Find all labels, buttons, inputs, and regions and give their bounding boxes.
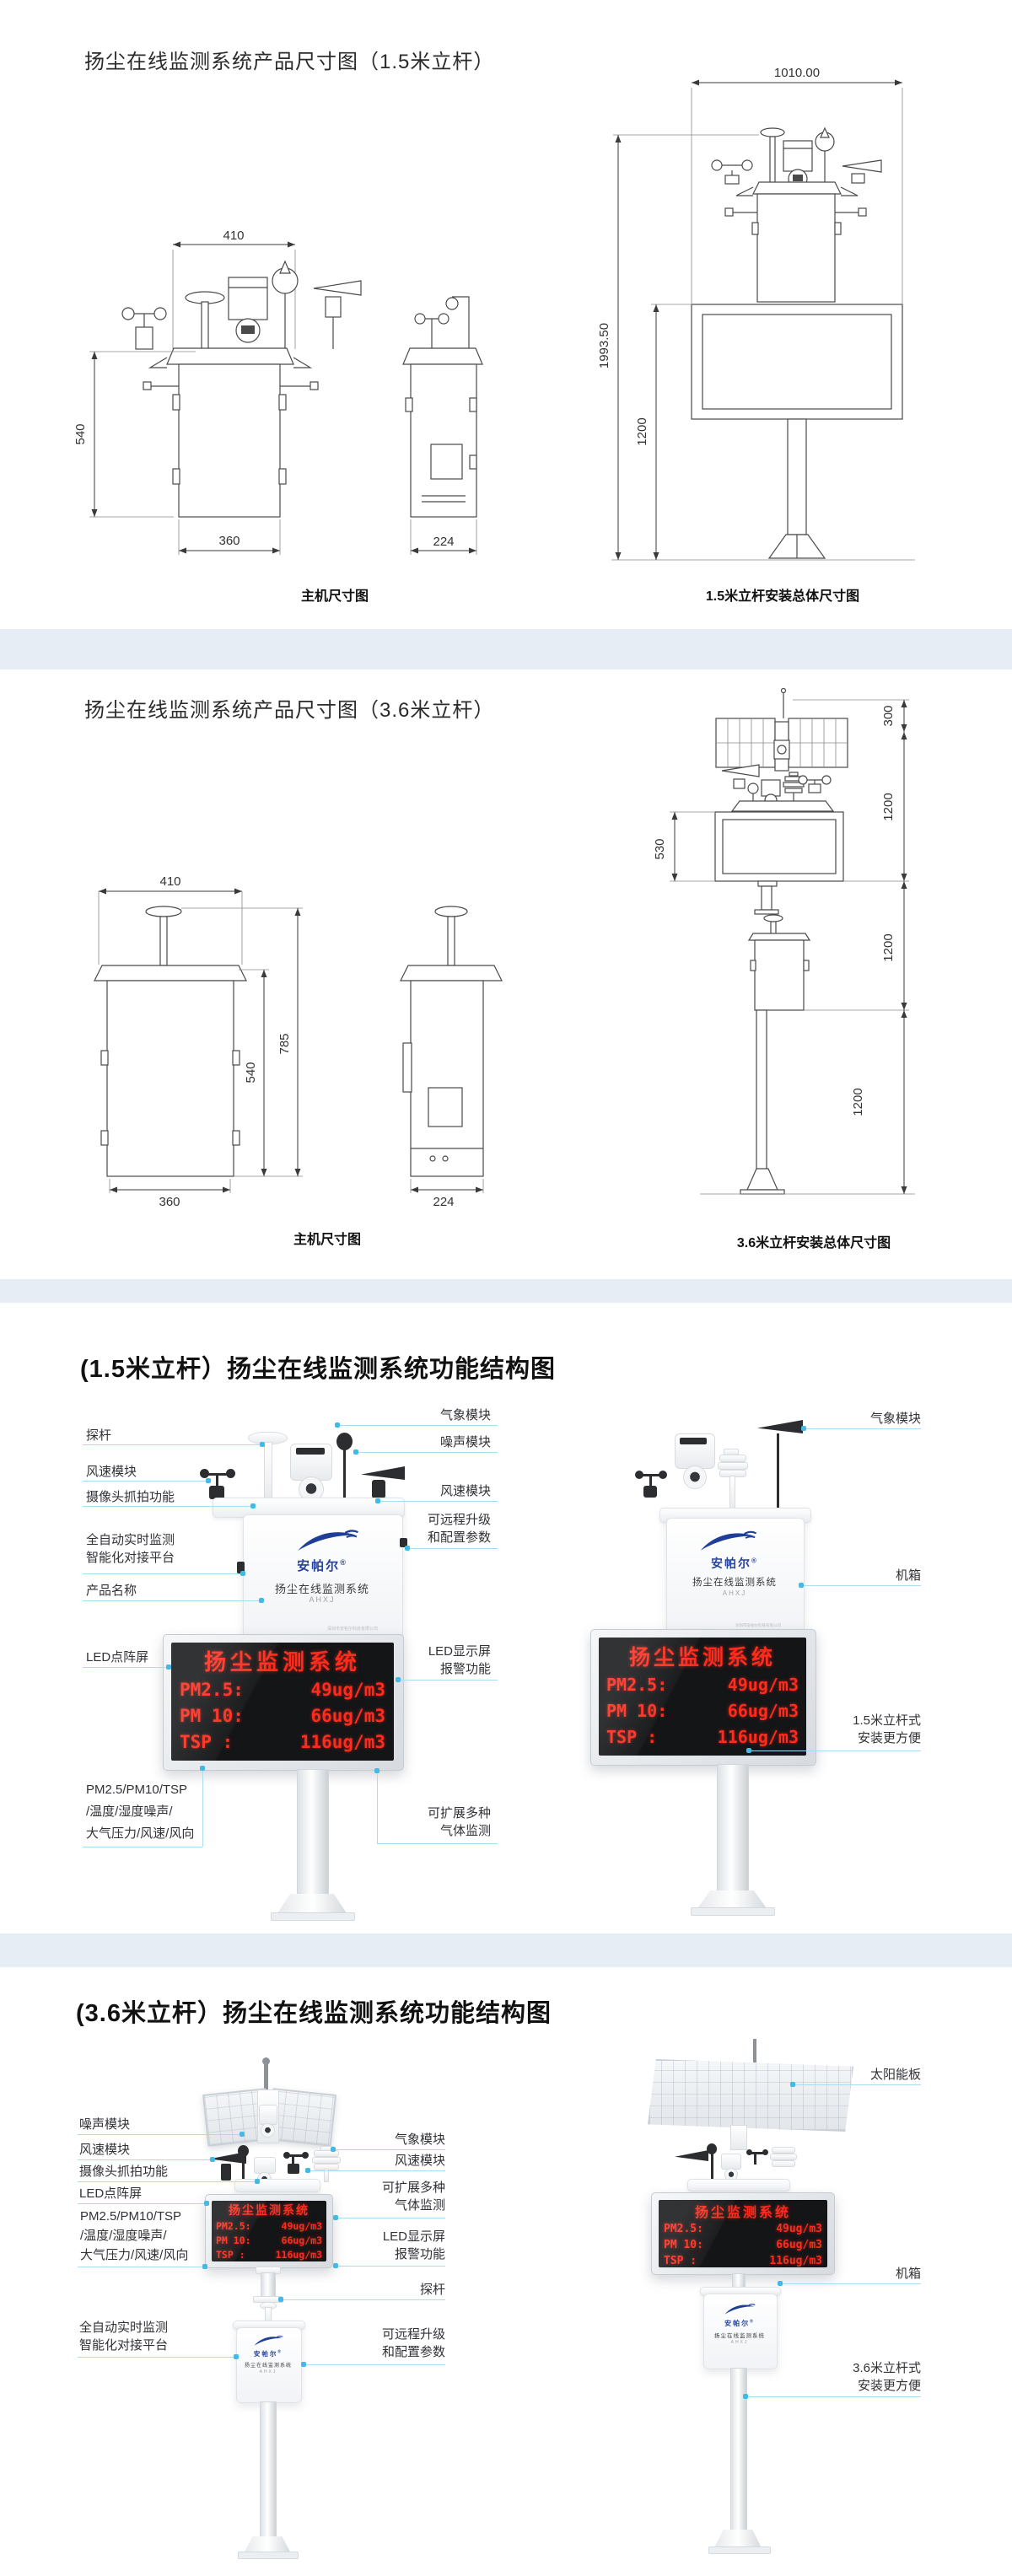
brand-swoosh-icon bbox=[698, 1528, 757, 1554]
noise-sensor-stem bbox=[343, 1449, 346, 1499]
mast-camera-dome-icon bbox=[261, 2123, 275, 2138]
lightning-rod-drawing bbox=[272, 261, 298, 349]
cabinet-model: AHXJ bbox=[666, 1589, 803, 1597]
s1-caption-pole: 1.5米立杆安装总体尺寸图 bbox=[706, 588, 859, 604]
antenna-rod bbox=[264, 2062, 268, 2091]
section3-title: (1.5米立杆）扬尘在线监测系统功能结构图 bbox=[80, 1349, 556, 1385]
callout-pole-install: 3.6米立杆式安装更方便 bbox=[835, 2359, 921, 2395]
led-board: 扬尘监测系统 PM2.5:49ug/m3 PM 10:66ug/m3 TSP :… bbox=[163, 1634, 404, 1771]
weather-sensor-plate bbox=[772, 2147, 795, 2154]
cabinet-model: AHXJ bbox=[243, 1595, 401, 1604]
anemometer-bar bbox=[285, 2154, 307, 2157]
section1-drawings: 410 bbox=[0, 0, 1012, 629]
noise-sensor-ball bbox=[238, 2145, 249, 2157]
anemometer-stem bbox=[292, 2157, 294, 2164]
led-screen: 扬尘监测系统 PM2.5:49ug/m3 PM 10:66ug/m3 TSP :… bbox=[171, 1643, 394, 1761]
wind-speed-sensor bbox=[288, 2164, 299, 2174]
weather-sensor-stem bbox=[729, 1476, 735, 1509]
led-screen: 扬尘监测系统 PM2.5:49ug/m3 PM 10:66ug/m3 TSP :… bbox=[599, 1638, 806, 1756]
led-screen: 扬尘监测系统 PM2.5:49ug/m3 PM 10:66ug/m3 TSP :… bbox=[659, 2200, 827, 2267]
dim-785: 785 bbox=[277, 1033, 292, 1054]
noise-sensor-stem bbox=[711, 2154, 713, 2179]
screen-glare bbox=[659, 2200, 827, 2267]
noise-sensor-stem bbox=[242, 2157, 245, 2181]
dim-360: 360 bbox=[159, 1195, 180, 1209]
callout-camera: 摄像头抓拍功能 bbox=[79, 2163, 168, 2181]
dim-530: 530 bbox=[653, 838, 667, 859]
dim-1010: 1010.00 bbox=[774, 66, 820, 80]
callout-weather-module: 气象模块 bbox=[405, 1406, 491, 1424]
section4-title: (3.6米立杆）扬尘在线监测系统功能结构图 bbox=[76, 1993, 552, 2029]
s2-front-view: 410 540 785 360 bbox=[94, 874, 303, 1209]
anemometer-stem bbox=[754, 2154, 756, 2165]
callout-auto-monitor: 全自动实时监测智能化对接平台 bbox=[86, 1531, 175, 1567]
cabinet-product-name: 扬尘在线监测系统 bbox=[243, 1580, 401, 1596]
dim-410: 410 bbox=[159, 874, 180, 889]
dim-1200c: 1200 bbox=[851, 1088, 865, 1116]
screen-glare bbox=[171, 1643, 394, 1761]
anemometer-stem bbox=[216, 1476, 218, 1486]
callout-probe: 探杆 bbox=[361, 2281, 445, 2299]
callout-led-dot-screen: LED点阵屏 bbox=[79, 2185, 142, 2202]
callout-gas-expand: 可扩展多种气体监测 bbox=[361, 2179, 445, 2214]
cabinet-product-name: 扬尘在线监测系统 bbox=[236, 2361, 300, 2369]
weather-sensor-plate bbox=[770, 2154, 797, 2160]
cabinet-product-name: 扬尘在线监测系统 bbox=[666, 1575, 803, 1589]
callout-wind-module-2: 风速模块 bbox=[405, 1482, 491, 1500]
s1-caption-main: 主机尺寸图 bbox=[301, 588, 369, 604]
callout-weather-module: 气象模块 bbox=[361, 2131, 445, 2148]
callout-measured-params: PM2.5/PM10/TSP/温度/湿度噪声/大气压力/风速/风向 bbox=[86, 1779, 194, 1845]
callout-remote-upgrade: 可远程升级和配置参数 bbox=[361, 2326, 445, 2361]
product-spec-sheet: 扬尘在线监测系统产品尺寸图（1.5米立杆） 410 bbox=[0, 0, 1012, 2576]
cabinet-company-text: 深圳市安帕尔科技有限公司 bbox=[735, 1623, 781, 1628]
wind-vane-stem bbox=[777, 1433, 779, 1508]
wind-vane-base bbox=[372, 1480, 385, 1498]
dim-1993: 1993.50 bbox=[597, 323, 611, 368]
camera-band bbox=[680, 1438, 707, 1444]
callout-camera: 摄像头抓拍功能 bbox=[86, 1488, 175, 1506]
s1-side-view: 224 bbox=[403, 297, 482, 555]
dim-540: 540 bbox=[244, 1062, 258, 1083]
brand-swoosh-icon bbox=[253, 2334, 283, 2347]
cabinet-company-text: 深圳市安帕尔科技有限公司 bbox=[327, 1626, 378, 1632]
led-board: 扬尘监测系统 PM2.5:49ug/m3 PM 10:66ug/m3 TSP :… bbox=[651, 2192, 835, 2275]
callout-remote-upgrade: 可远程升级和配置参数 bbox=[405, 1511, 491, 1546]
camera-dome-icon bbox=[683, 1465, 707, 1489]
camera-drawing bbox=[229, 277, 267, 342]
roof-front bbox=[167, 348, 293, 364]
callout-solar-panel: 太阳能板 bbox=[835, 2066, 921, 2084]
weather-sensor-plate bbox=[772, 2160, 795, 2167]
anemometer-bar bbox=[748, 2152, 767, 2154]
weather-sensor-plate bbox=[312, 2157, 341, 2164]
antenna-tip bbox=[262, 2057, 270, 2065]
dim-360: 360 bbox=[218, 534, 240, 548]
dim-224: 224 bbox=[433, 535, 454, 549]
section2-drawings: 410 540 785 360 224 bbox=[0, 670, 1012, 1279]
anemometer-drawing bbox=[122, 308, 166, 349]
callout-probe: 探杆 bbox=[86, 1427, 111, 1444]
base-plate bbox=[271, 1912, 355, 1921]
camera-band bbox=[296, 1448, 325, 1455]
callout-noise-module: 噪声模块 bbox=[79, 2116, 130, 2133]
callout-gas-expand: 可扩展多种气体监测 bbox=[405, 1804, 491, 1840]
callout-led-alarm: LED显示屏报警功能 bbox=[361, 2228, 445, 2263]
solar-panel bbox=[648, 2059, 853, 2132]
screen-glare bbox=[212, 2201, 326, 2261]
panel-mount bbox=[730, 2125, 747, 2150]
weather-sensor-plate bbox=[718, 1462, 748, 1470]
callout-measured-params: PM2.5/PM10/TSP/温度/湿度噪声/大气压力/风速/风向 bbox=[80, 2207, 188, 2265]
brand-name: 安帕尔® bbox=[703, 2319, 776, 2328]
callout-weather-module-right: 气象模块 bbox=[835, 1410, 921, 1428]
cabinet-model: AHXJ bbox=[703, 2340, 776, 2345]
base-plate bbox=[238, 2552, 299, 2559]
cabinet-front bbox=[179, 364, 280, 517]
wind-speed-sensor bbox=[643, 1486, 657, 1498]
base-plate bbox=[691, 1907, 775, 1916]
callout-pole-install: 1.5米立杆式安装更方便 bbox=[835, 1712, 921, 1747]
callout-led-alarm: LED显示屏报警功能 bbox=[405, 1643, 491, 1678]
dim-1200a: 1200 bbox=[881, 793, 896, 820]
led-board: 扬尘监测系统 PM2.5:49ug/m3 PM 10:66ug/m3 TSP :… bbox=[590, 1629, 816, 1766]
led-screen: 扬尘监测系统 PM2.5:49ug/m3 PM 10:66ug/m3 TSP :… bbox=[212, 2201, 326, 2261]
dim-1200b: 1200 bbox=[881, 933, 896, 961]
probe-stem bbox=[264, 1442, 272, 1501]
screen-glare bbox=[599, 1638, 806, 1756]
base-plate bbox=[708, 2546, 771, 2554]
separator-band bbox=[0, 1279, 1012, 1303]
wind-vane-blade bbox=[757, 1420, 803, 1433]
wind-vane-blade bbox=[675, 2150, 708, 2161]
callout-cabinet: 机箱 bbox=[835, 1567, 921, 1584]
brand-name: 安帕尔® bbox=[666, 1555, 803, 1572]
callout-auto-monitor: 全自动实时监测智能化对接平台 bbox=[79, 2319, 168, 2354]
antenna-rod bbox=[753, 2039, 756, 2062]
brand-swoosh-icon bbox=[724, 2302, 756, 2316]
wind-vane-base bbox=[221, 2164, 231, 2181]
probe-drawing bbox=[186, 292, 224, 349]
wind-vane-drawing bbox=[314, 281, 361, 349]
anemometer-stem bbox=[649, 1476, 652, 1486]
cabinet-product-name: 扬尘在线监测系统 bbox=[703, 2331, 776, 2339]
separator-band bbox=[0, 1933, 1012, 1967]
led-board: 扬尘监测系统 PM2.5:49ug/m3 PM 10:66ug/m3 TSP :… bbox=[205, 2194, 333, 2268]
sensor-platform bbox=[687, 2179, 790, 2191]
s2-caption-main: 主机尺寸图 bbox=[293, 1231, 361, 1247]
callout-wind-module: 风速模块 bbox=[86, 1463, 137, 1481]
cabinet-model: AHXJ bbox=[236, 2369, 300, 2374]
noise-sensor-ball bbox=[336, 1433, 353, 1450]
support-pole bbox=[297, 1769, 329, 1904]
callout-wind-module-2: 风速模块 bbox=[361, 2152, 445, 2170]
s2-side-view: 224 bbox=[401, 906, 502, 1209]
support-pole bbox=[260, 2401, 277, 2546]
callout-led-dot-screen: LED点阵屏 bbox=[86, 1648, 148, 1666]
callout-noise-module: 噪声模块 bbox=[405, 1433, 491, 1451]
wind-vane-blade bbox=[361, 1466, 405, 1480]
dim-540: 540 bbox=[73, 423, 88, 444]
s2-caption-pole: 3.6米立杆安装总体尺寸图 bbox=[737, 1234, 891, 1250]
callout-cabinet: 机箱 bbox=[835, 2265, 921, 2283]
mast-camera bbox=[259, 2105, 277, 2125]
weather-sensor-plate bbox=[719, 1455, 746, 1462]
s1-pole-view: 1010.00 1993.50 1200 bbox=[597, 66, 915, 560]
separator-band bbox=[0, 629, 1012, 670]
callout-product-name: 产品名称 bbox=[86, 1582, 137, 1600]
dim-224: 224 bbox=[433, 1195, 454, 1209]
brand-swoosh-icon bbox=[295, 1526, 359, 1555]
dim-410: 410 bbox=[223, 229, 244, 243]
callout-wind-module: 风速模块 bbox=[79, 2141, 130, 2159]
brand-name: 安帕尔® bbox=[236, 2349, 300, 2358]
s1-front-view: 410 bbox=[73, 229, 361, 555]
dim-300: 300 bbox=[881, 705, 896, 726]
dim-1200: 1200 bbox=[635, 417, 649, 445]
camera-head bbox=[254, 2157, 276, 2174]
brand-name: 安帕尔® bbox=[243, 1557, 401, 1574]
support-pole bbox=[717, 1764, 749, 1894]
s2-pole-view: 300 1200 530 1 bbox=[653, 689, 915, 1195]
